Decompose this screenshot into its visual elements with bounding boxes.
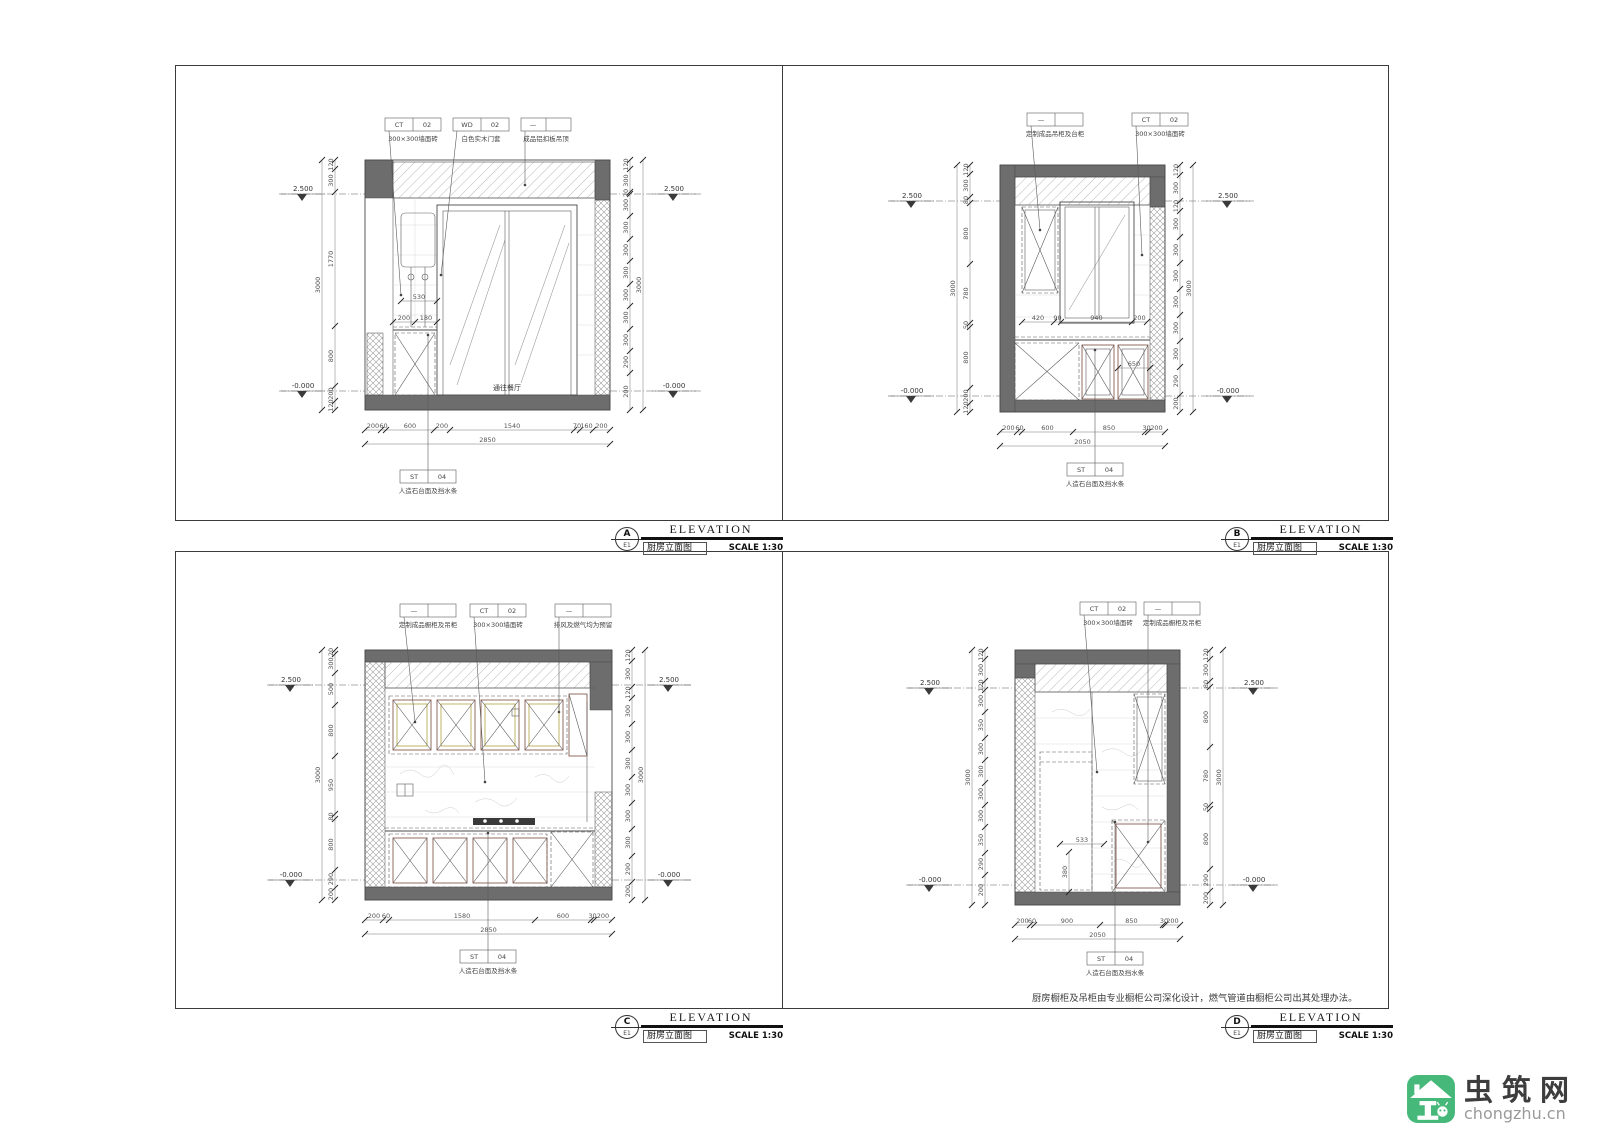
svg-text:420: 420	[1032, 314, 1044, 322]
water-heater	[401, 213, 435, 327]
svg-text:950: 950	[327, 779, 335, 791]
dims-right-total: 3000	[1185, 162, 1196, 415]
svg-text:350: 350	[977, 719, 985, 731]
svg-text:200: 200	[327, 387, 335, 399]
svg-text:2050: 2050	[1074, 438, 1091, 446]
drawing-sheet-page: 通往餐厅 CT 02 300×300墙面砖 WD 02 白色实木门套 — 成品铝…	[0, 0, 1600, 1131]
svg-text:2.500: 2.500	[902, 192, 922, 200]
svg-text:-0.000: -0.000	[1217, 387, 1240, 395]
svg-text:04: 04	[438, 473, 446, 481]
svg-text:300: 300	[622, 289, 630, 301]
dims-bottom: 2006060085030200	[997, 424, 1168, 435]
dims-left-total: 3000	[964, 647, 975, 908]
svg-text:290: 290	[624, 863, 632, 875]
svg-text:200: 200	[624, 885, 632, 897]
svg-text:120: 120	[977, 648, 985, 660]
svg-text:02: 02	[1118, 605, 1126, 613]
title-cn: 厨房立面图	[1253, 1030, 1317, 1043]
svg-text:200: 200	[367, 422, 379, 430]
svg-text:1580: 1580	[454, 912, 471, 920]
titleblock-a: A E1 ELEVATION 厨房立面图 SCALE 1:30	[615, 525, 783, 552]
view-marker-circle: D E1	[1225, 1015, 1249, 1039]
svg-text:2.500: 2.500	[1218, 192, 1238, 200]
svg-text:CT: CT	[480, 607, 489, 615]
dims-right: 1203008080078050800290200	[1202, 647, 1213, 908]
chongzhu-logo-icon	[1406, 1074, 1456, 1124]
svg-text:600: 600	[1041, 424, 1053, 432]
svg-text:300×300墙面砖: 300×300墙面砖	[1135, 129, 1185, 138]
svg-text:300: 300	[1172, 270, 1180, 282]
svg-text:600: 600	[557, 912, 569, 920]
svg-text:人造石台面及挡水条: 人造石台面及挡水条	[1086, 968, 1145, 977]
base-cabinets	[1015, 337, 1150, 400]
svg-text:定制成品吊柜及台柜: 定制成品吊柜及台柜	[1026, 129, 1085, 138]
svg-text:20: 20	[327, 648, 335, 656]
svg-text:WD: WD	[461, 121, 472, 129]
svg-text:900: 900	[1061, 917, 1073, 925]
svg-text:200: 200	[1202, 892, 1210, 904]
svg-text:04: 04	[498, 953, 506, 961]
view-marker-circle: C E1	[615, 1015, 639, 1039]
svg-text:2.500: 2.500	[281, 676, 301, 684]
svg-text:定制成品橱柜及吊柜: 定制成品橱柜及吊柜	[399, 620, 458, 629]
level-marker-top-right: 2.500	[647, 676, 691, 692]
dims-right: 120300120300300300300300300290200	[624, 647, 635, 903]
room-label: 通往餐厅	[493, 383, 521, 392]
svg-text:-0.000: -0.000	[1243, 876, 1266, 884]
svg-text:380: 380	[1061, 866, 1069, 878]
level-marker-bottom-right: -0.000	[652, 382, 696, 398]
svg-text:300: 300	[622, 174, 630, 186]
svg-text:120: 120	[327, 158, 335, 170]
svg-text:-0.000: -0.000	[901, 387, 924, 395]
svg-text:2.500: 2.500	[664, 185, 684, 193]
svg-text:200: 200	[597, 912, 609, 920]
svg-text:-0.000: -0.000	[919, 876, 942, 884]
svg-text:60: 60	[1015, 424, 1023, 432]
material-tag-ct02: CT 02 300×300墙面砖	[470, 604, 526, 783]
base-cabinet	[393, 327, 437, 395]
svg-text:02: 02	[508, 607, 516, 615]
watermark-site-name: 虫筑网	[1464, 1075, 1578, 1105]
dims-bottom: 2006090085030200	[1012, 917, 1183, 928]
svg-text:04: 04	[1125, 955, 1133, 963]
title-en: ELEVATION	[641, 1010, 781, 1025]
svg-text:300: 300	[624, 668, 632, 680]
svg-text:2.500: 2.500	[293, 185, 313, 193]
svg-text:200: 200	[962, 389, 970, 401]
svg-text:300: 300	[327, 174, 335, 186]
svg-text:30: 30	[588, 912, 596, 920]
level-marker-top-left: 2.500	[908, 679, 952, 695]
svg-text:-0.000: -0.000	[292, 382, 315, 390]
dims-right-total: 3000	[637, 647, 648, 903]
titleblock-d: D E1 ELEVATION 厨房立面图 SCALE 1:30	[1225, 1013, 1393, 1040]
dims-right: 120300120300300300300300300290200	[1172, 162, 1183, 415]
view-letter: B	[1226, 529, 1248, 539]
svg-text:350: 350	[977, 834, 985, 846]
title-cn: 厨房立面图	[1253, 542, 1317, 555]
view-letter: A	[616, 529, 638, 539]
svg-text:120: 120	[622, 158, 630, 170]
svg-text:300: 300	[624, 757, 632, 769]
dim-cabinet-650: 650	[1115, 360, 1153, 371]
svg-text:02: 02	[1170, 116, 1178, 124]
svg-text:800: 800	[327, 838, 335, 850]
svg-text:ST: ST	[410, 473, 418, 481]
svg-text:300: 300	[962, 179, 970, 191]
watermark-site-url: chongzhu.cn	[1464, 1105, 1578, 1123]
svg-text:200: 200	[436, 422, 448, 430]
svg-text:人造石台面及挡水条: 人造石台面及挡水条	[1066, 479, 1125, 488]
svg-text:300: 300	[1172, 218, 1180, 230]
svg-text:3000: 3000	[949, 280, 957, 297]
fridge-niche	[1040, 692, 1092, 892]
general-note: 厨房橱柜及吊柜由专业橱柜公司深化设计，燃气管道由橱柜公司出其处理办法。	[1032, 992, 1357, 1004]
level-marker-bottom-left: -0.000	[908, 876, 952, 892]
svg-text:300: 300	[622, 311, 630, 323]
title-underline	[641, 1025, 783, 1028]
svg-text:290: 290	[1172, 375, 1180, 387]
titleblock-b: B E1 ELEVATION 厨房立面图 SCALE 1:30	[1225, 525, 1393, 552]
svg-text:90: 90	[1053, 314, 1061, 322]
upper-cabinets	[389, 694, 587, 756]
svg-text:120: 120	[962, 163, 970, 175]
svg-text:780: 780	[1202, 770, 1210, 782]
svg-text:200: 200	[1016, 917, 1028, 925]
svg-text:人造石台面及挡水条: 人造石台面及挡水条	[399, 486, 458, 495]
svg-text:200: 200	[1166, 917, 1178, 925]
elevation-panel-d: CT 02 300×300墙面砖 — 定制成品橱柜及吊柜 2.500 -0.00…	[782, 552, 1389, 1008]
svg-text:2850: 2850	[479, 436, 496, 444]
level-refs	[888, 201, 1254, 396]
svg-text:300: 300	[624, 784, 632, 796]
svg-text:160: 160	[580, 422, 592, 430]
title-strip-bottom: C E1 ELEVATION 厨房立面图 SCALE 1:30 D E1 ELE…	[175, 1008, 1389, 1043]
svg-text:60: 60	[382, 912, 390, 920]
svg-text:200: 200	[1133, 314, 1145, 322]
svg-text:850: 850	[1125, 917, 1137, 925]
svg-text:300: 300	[1202, 664, 1210, 676]
svg-text:290: 290	[1202, 874, 1210, 886]
scale-label: SCALE 1:30	[729, 543, 783, 553]
watermark-text: 虫筑网 chongzhu.cn	[1464, 1075, 1578, 1123]
svg-text:—: —	[1155, 605, 1162, 613]
svg-text:200: 200	[1002, 424, 1014, 432]
dims-left: 1203008080078050800200120	[962, 162, 973, 415]
dims-right-total: 3000	[1215, 647, 1226, 908]
dims-bottom-total: 2850	[362, 436, 613, 447]
svg-text:3000: 3000	[314, 767, 322, 784]
level-marker-bottom-right: -0.000	[1206, 387, 1250, 403]
level-marker-top-right: 2.500	[1206, 192, 1250, 208]
svg-text:300: 300	[622, 244, 630, 256]
material-tag-ct02: CT 02 300×300墙面砖	[385, 118, 441, 296]
svg-text:—: —	[566, 607, 573, 615]
view-marker-circle: B E1	[1225, 527, 1249, 551]
svg-text:780: 780	[962, 287, 970, 299]
svg-text:290: 290	[977, 858, 985, 870]
svg-text:—: —	[530, 121, 537, 129]
title-strip-top: A E1 ELEVATION 厨房立面图 SCALE 1:30 B E1 ELE…	[175, 520, 1389, 552]
elevation-panel-a: 通往餐厅 CT 02 300×300墙面砖 WD 02 白色实木门套 — 成品铝…	[175, 65, 782, 520]
svg-text:02: 02	[491, 121, 499, 129]
dims-left: 2030050080095080800290200	[327, 647, 338, 903]
svg-text:120: 120	[624, 686, 632, 698]
level-marker-top-left: 2.500	[890, 192, 934, 208]
view-code: E1	[616, 542, 638, 549]
dims-right: 12030020300300300300300300300290200	[622, 157, 633, 413]
svg-text:300×300墙面砖: 300×300墙面砖	[388, 134, 438, 143]
svg-text:-0.000: -0.000	[658, 871, 681, 879]
countertop-tag: ST 04 人造石台面及挡水条	[459, 832, 518, 975]
svg-text:300: 300	[624, 731, 632, 743]
svg-text:530: 530	[413, 293, 425, 301]
upper-cabinet	[1022, 207, 1058, 293]
svg-text:300: 300	[622, 199, 630, 211]
view-code: E1	[1226, 542, 1248, 549]
svg-text:-0.000: -0.000	[663, 382, 686, 390]
svg-text:300: 300	[977, 695, 985, 707]
view-marker-circle: A E1	[615, 527, 639, 551]
level-marker-bottom-left: -0.000	[269, 871, 313, 887]
svg-text:3000: 3000	[1215, 769, 1223, 786]
dim-fridge-width: 533	[1057, 836, 1107, 847]
window	[1060, 202, 1134, 323]
elevation-panel-c: — 定制成品橱柜及吊柜 CT 02 300×300墙面砖 — 排风及燃气均为预留…	[175, 552, 782, 1008]
countertop-tag: ST 04 人造石台面及挡水条	[399, 334, 458, 495]
backsplash	[385, 765, 595, 817]
svg-text:300: 300	[1172, 244, 1180, 256]
svg-text:成品铝扣板吊顶: 成品铝扣板吊顶	[523, 134, 569, 143]
svg-text:3000: 3000	[964, 769, 972, 786]
svg-text:60: 60	[1028, 917, 1036, 925]
svg-text:300: 300	[977, 743, 985, 755]
svg-text:800: 800	[1202, 833, 1210, 845]
titleblock-c: C E1 ELEVATION 厨房立面图 SCALE 1:30	[615, 1013, 783, 1040]
svg-text:2850: 2850	[480, 926, 497, 934]
svg-text:650: 650	[1128, 360, 1140, 368]
title-en: ELEVATION	[1251, 522, 1391, 537]
svg-text:300: 300	[977, 788, 985, 800]
svg-text:02: 02	[423, 121, 431, 129]
svg-text:120: 120	[977, 679, 985, 691]
dims-bottom: 20060158060030200	[362, 912, 615, 923]
svg-text:600: 600	[404, 422, 416, 430]
view-letter: D	[1226, 1017, 1248, 1027]
dim-fridge-height: 380	[1061, 849, 1072, 895]
svg-text:1540: 1540	[504, 422, 521, 430]
svg-text:200: 200	[622, 385, 630, 397]
title-cn: 厨房立面图	[643, 542, 707, 555]
svg-text:2.500: 2.500	[920, 679, 940, 687]
title-cn: 厨房立面图	[643, 1030, 707, 1043]
svg-text:120: 120	[1172, 200, 1180, 212]
level-marker-top-left: 2.500	[281, 185, 325, 201]
svg-text:50: 50	[1202, 803, 1210, 811]
svg-text:120: 120	[624, 649, 632, 661]
svg-text:80: 80	[327, 812, 335, 820]
svg-text:300: 300	[624, 705, 632, 717]
svg-text:3000: 3000	[637, 767, 645, 784]
title-underline	[1251, 1025, 1393, 1028]
dims-bottom-total: 2050	[997, 438, 1168, 449]
title-en: ELEVATION	[1251, 1010, 1391, 1025]
svg-text:300: 300	[977, 664, 985, 676]
svg-text:300×300墙面砖: 300×300墙面砖	[473, 620, 523, 629]
svg-text:800: 800	[327, 724, 335, 736]
svg-text:50: 50	[962, 321, 970, 329]
svg-text:3000: 3000	[314, 277, 322, 294]
svg-text:300: 300	[1172, 322, 1180, 334]
level-marker-top-left: 2.500	[269, 676, 313, 692]
svg-text:白色实木门套: 白色实木门套	[462, 134, 502, 143]
scale-label: SCALE 1:30	[1339, 1031, 1393, 1041]
level-marker-bottom-left: -0.000	[890, 387, 934, 403]
svg-text:300×300墙面砖: 300×300墙面砖	[1083, 618, 1133, 627]
svg-text:850: 850	[1103, 424, 1115, 432]
cooktop	[473, 818, 535, 825]
base-cabinet	[1112, 820, 1165, 892]
svg-text:940: 940	[1090, 314, 1102, 322]
dims-left-total: 3000	[314, 157, 325, 413]
svg-text:CT: CT	[1090, 605, 1099, 613]
svg-text:20: 20	[622, 189, 630, 197]
dims-left: 1203001770800200120	[327, 157, 338, 413]
svg-text:ST: ST	[470, 953, 478, 961]
dims-left-total: 3000	[314, 647, 325, 903]
svg-text:300: 300	[977, 810, 985, 822]
svg-text:ST: ST	[1097, 955, 1105, 963]
svg-text:800: 800	[327, 350, 335, 362]
svg-text:300: 300	[624, 836, 632, 848]
svg-text:800: 800	[1202, 711, 1210, 723]
dims-bottom-total: 2050	[1012, 931, 1183, 942]
svg-text:2.500: 2.500	[659, 676, 679, 684]
scale-label: SCALE 1:30	[729, 1031, 783, 1041]
level-marker-top-right: 2.500	[1232, 679, 1276, 695]
svg-text:120: 120	[1202, 648, 1210, 660]
svg-text:500: 500	[327, 683, 335, 695]
level-marker-bottom-left: -0.000	[281, 382, 325, 398]
dims-left-total: 3000	[949, 162, 960, 415]
svg-text:120: 120	[1172, 164, 1180, 176]
svg-text:290: 290	[327, 873, 335, 885]
svg-text:80: 80	[1202, 680, 1210, 688]
base-cabinets	[385, 702, 595, 887]
svg-text:排风及燃气均为预留: 排风及燃气均为预留	[554, 620, 613, 629]
view-letter: C	[616, 1017, 638, 1027]
svg-text:3000: 3000	[1185, 280, 1193, 297]
svg-text:2050: 2050	[1089, 931, 1106, 939]
dims-bottom-total: 2850	[362, 926, 615, 937]
svg-text:120: 120	[327, 399, 335, 411]
dims-right-total: 3000	[635, 157, 646, 413]
svg-text:300: 300	[977, 765, 985, 777]
svg-text:定制成品橱柜及吊柜: 定制成品橱柜及吊柜	[1143, 618, 1202, 627]
level-marker-top-right: 2.500	[652, 185, 696, 201]
svg-text:300: 300	[1172, 296, 1180, 308]
svg-text:200: 200	[1172, 397, 1180, 409]
svg-text:300: 300	[327, 657, 335, 669]
svg-text:-0.000: -0.000	[280, 871, 303, 879]
chongzhu-watermark[interactable]: 虫筑网 chongzhu.cn	[1406, 1070, 1598, 1128]
title-underline	[641, 537, 783, 540]
svg-text:120: 120	[962, 401, 970, 413]
view-code: E1	[616, 1030, 638, 1037]
svg-text:1770: 1770	[327, 251, 335, 268]
svg-text:200: 200	[1150, 424, 1162, 432]
svg-text:300: 300	[622, 221, 630, 233]
svg-text:200: 200	[595, 422, 607, 430]
scale-label: SCALE 1:30	[1339, 543, 1393, 553]
title-en: ELEVATION	[641, 522, 781, 537]
level-marker-bottom-right: -0.000	[1232, 876, 1276, 892]
svg-text:800: 800	[962, 227, 970, 239]
wall-crosshatch	[595, 200, 610, 395]
svg-text:80: 80	[962, 196, 970, 204]
svg-text:290: 290	[622, 356, 630, 368]
upper-cabinet	[1134, 694, 1165, 784]
svg-text:300: 300	[624, 810, 632, 822]
svg-text:—: —	[1038, 116, 1045, 124]
elevation-panel-b: — 定制成品吊柜及台柜 CT 02 300×300墙面砖 2.500 -0.00…	[782, 65, 1389, 520]
svg-text:200: 200	[327, 888, 335, 900]
svg-text:人造石台面及挡水条: 人造石台面及挡水条	[459, 966, 518, 975]
svg-text:—: —	[411, 607, 418, 615]
level-marker-bottom-right: -0.000	[647, 871, 691, 887]
svg-text:CT: CT	[395, 121, 404, 129]
svg-text:200: 200	[977, 884, 985, 896]
svg-text:200: 200	[398, 314, 410, 322]
dims-bottom: 20060600200154070160200	[362, 422, 613, 433]
svg-text:04: 04	[1105, 466, 1113, 474]
double-glass-door: 通往餐厅	[437, 205, 577, 395]
svg-text:800: 800	[962, 351, 970, 363]
svg-text:2.500: 2.500	[1244, 679, 1264, 687]
svg-text:300: 300	[622, 266, 630, 278]
tile-grid	[393, 198, 595, 355]
tile-grid	[1015, 235, 1150, 317]
dim-heater-width: 530	[398, 293, 440, 304]
svg-text:300: 300	[622, 334, 630, 346]
svg-text:300: 300	[1172, 182, 1180, 194]
svg-text:CT: CT	[1142, 116, 1151, 124]
tile-wall	[1035, 709, 1167, 874]
view-code: E1	[1226, 1030, 1248, 1037]
svg-text:3000: 3000	[635, 277, 643, 294]
svg-text:200: 200	[368, 912, 380, 920]
svg-text:533: 533	[1076, 836, 1088, 844]
lintel-hatch	[393, 162, 595, 198]
title-underline	[1251, 537, 1393, 540]
svg-text:60: 60	[379, 422, 387, 430]
svg-text:180: 180	[420, 314, 432, 322]
dims-left: 120300120300350300300300300350290200	[977, 647, 988, 908]
svg-text:300: 300	[1172, 348, 1180, 360]
svg-text:ST: ST	[1077, 466, 1085, 474]
